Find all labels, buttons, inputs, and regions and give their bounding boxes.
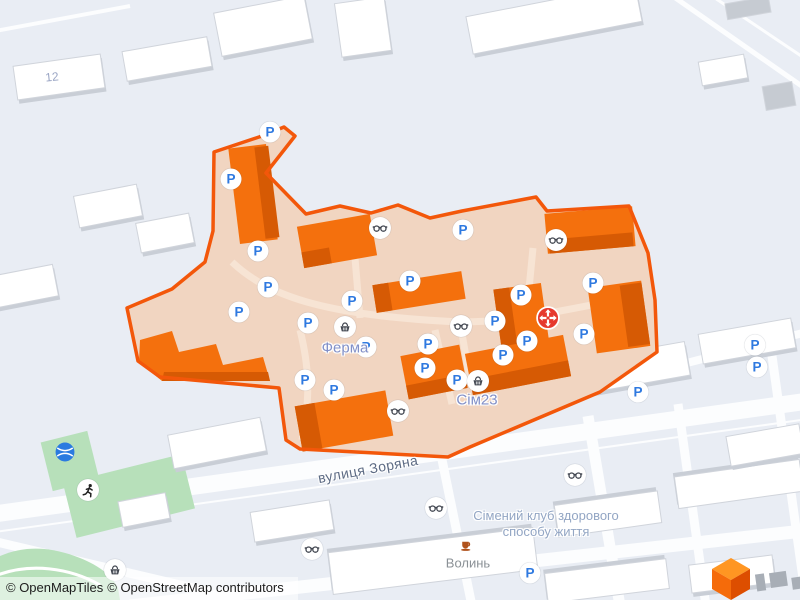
parking-icon[interactable]: P: [453, 220, 474, 241]
parking-icon[interactable]: P: [447, 370, 468, 391]
red-arrows-icon[interactable]: [536, 306, 560, 330]
parking-icon[interactable]: P: [295, 370, 316, 391]
glasses-icon[interactable]: [564, 464, 586, 486]
parking-icon[interactable]: P: [400, 271, 421, 292]
sim23-label: Сім23: [456, 392, 497, 409]
map-canvas[interactable]: P P P P P P P P P P P P P P P P P P P P …: [0, 0, 800, 600]
parking-icon[interactable]: P: [747, 357, 768, 378]
parking-icon[interactable]: P: [342, 291, 363, 312]
attribution-openmaptiles-link[interactable]: © OpenMapTiles: [6, 580, 103, 595]
glasses-icon[interactable]: [387, 400, 409, 422]
sports-ball-icon[interactable]: [55, 442, 76, 463]
parking-icon[interactable]: P: [229, 302, 250, 323]
family-club-label: Сімений клуб здорового способу життя: [431, 508, 661, 541]
parking-icon[interactable]: P: [517, 331, 538, 352]
parking-icon[interactable]: P: [248, 241, 269, 262]
parking-icon[interactable]: P: [574, 324, 595, 345]
shop-basket-icon[interactable]: [467, 370, 489, 392]
parking-icon[interactable]: P: [493, 345, 514, 366]
partial-map-text: [755, 571, 800, 592]
glasses-icon[interactable]: [545, 229, 567, 251]
attribution-osm-link[interactable]: © OpenStreetMap contributors: [107, 580, 284, 595]
volyn-label: Волинь: [446, 556, 490, 571]
family-club-label-line2: способу життя: [431, 524, 661, 540]
parking-icon[interactable]: P: [418, 334, 439, 355]
parking-icon[interactable]: P: [485, 311, 506, 332]
maptiler-cube-logo[interactable]: [708, 556, 754, 600]
glasses-icon[interactable]: [450, 315, 472, 337]
shop-basket-icon[interactable]: [334, 316, 356, 338]
parking-icon[interactable]: P: [745, 335, 766, 356]
parking-icon[interactable]: P: [628, 382, 649, 403]
parking-icon[interactable]: P: [511, 285, 532, 306]
ferma-label: Ферма: [322, 340, 369, 357]
parking-icon[interactable]: P: [520, 563, 541, 584]
runner-icon[interactable]: [77, 479, 99, 501]
house-number-label: 12: [45, 69, 60, 84]
parking-icon[interactable]: P: [298, 313, 319, 334]
glasses-icon[interactable]: [301, 538, 323, 560]
parking-icon[interactable]: P: [260, 122, 281, 143]
parking-icon[interactable]: P: [583, 273, 604, 294]
glasses-icon[interactable]: [369, 217, 391, 239]
attribution: © OpenMapTiles© OpenStreetMap contributo…: [0, 577, 298, 600]
parking-icon[interactable]: P: [324, 380, 345, 401]
map-base-layer: [0, 0, 800, 600]
parking-icon[interactable]: P: [258, 277, 279, 298]
parking-icon[interactable]: P: [415, 358, 436, 379]
family-club-label-line1: Сімений клуб здорового: [431, 508, 661, 524]
parking-icon[interactable]: P: [221, 169, 242, 190]
